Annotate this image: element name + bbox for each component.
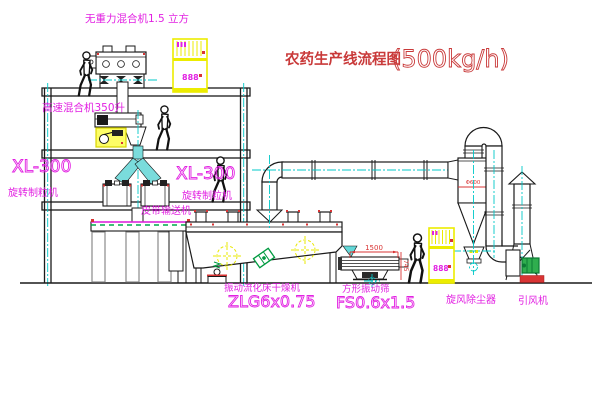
sieve-model-label: FS0.6x1.5 xyxy=(336,293,415,312)
granulator-right-name: 旋转制粒机 xyxy=(182,189,232,202)
fan-label: 引风机 xyxy=(518,294,548,307)
square-sieve: 1500 745 xyxy=(338,244,409,288)
person-4 xyxy=(409,234,424,283)
fan-and-stack xyxy=(506,166,544,283)
belt-conveyor xyxy=(91,208,191,283)
person-2 xyxy=(157,106,171,150)
dryer-model-label: ZLG6x0.75 xyxy=(228,292,316,311)
cabinet1-display: 888 xyxy=(182,73,199,82)
u-bend-duct xyxy=(465,128,502,147)
diagram-title: 农药生产线流程图 xyxy=(284,50,401,68)
granulator-left-name: 旋转制粒机 xyxy=(8,186,58,199)
cabinet2-display: 888 xyxy=(433,264,449,273)
granulator-left-model: XL-300 xyxy=(12,157,71,177)
cyclone-label: 旋风除尘器 xyxy=(446,293,496,306)
granulator-left xyxy=(103,180,131,206)
diagram-capacity: (500kg/h) xyxy=(392,45,509,73)
sieve-length-dim: 1500 xyxy=(365,244,383,252)
gravity-mixer-label: 无重力混合机1.5 立方 xyxy=(85,12,189,25)
process-flow-diagram: 888 xyxy=(0,0,600,403)
fan-casing xyxy=(506,250,520,276)
dryer-feed-chute xyxy=(169,231,183,271)
fan-base xyxy=(520,276,544,283)
belt-conveyor-label: 皮带输送机 xyxy=(141,204,191,217)
duct-elbow xyxy=(262,162,283,182)
high-speed-mixer-label: 高速混合机350升 xyxy=(42,101,125,114)
granulator-right xyxy=(141,180,169,206)
control-cabinet-1: 888 xyxy=(173,39,207,92)
granulator-right-model: XL-300 xyxy=(176,164,235,184)
sieve-height-dim: 745 xyxy=(402,260,409,272)
control-cabinet-2: 888 xyxy=(429,228,454,283)
